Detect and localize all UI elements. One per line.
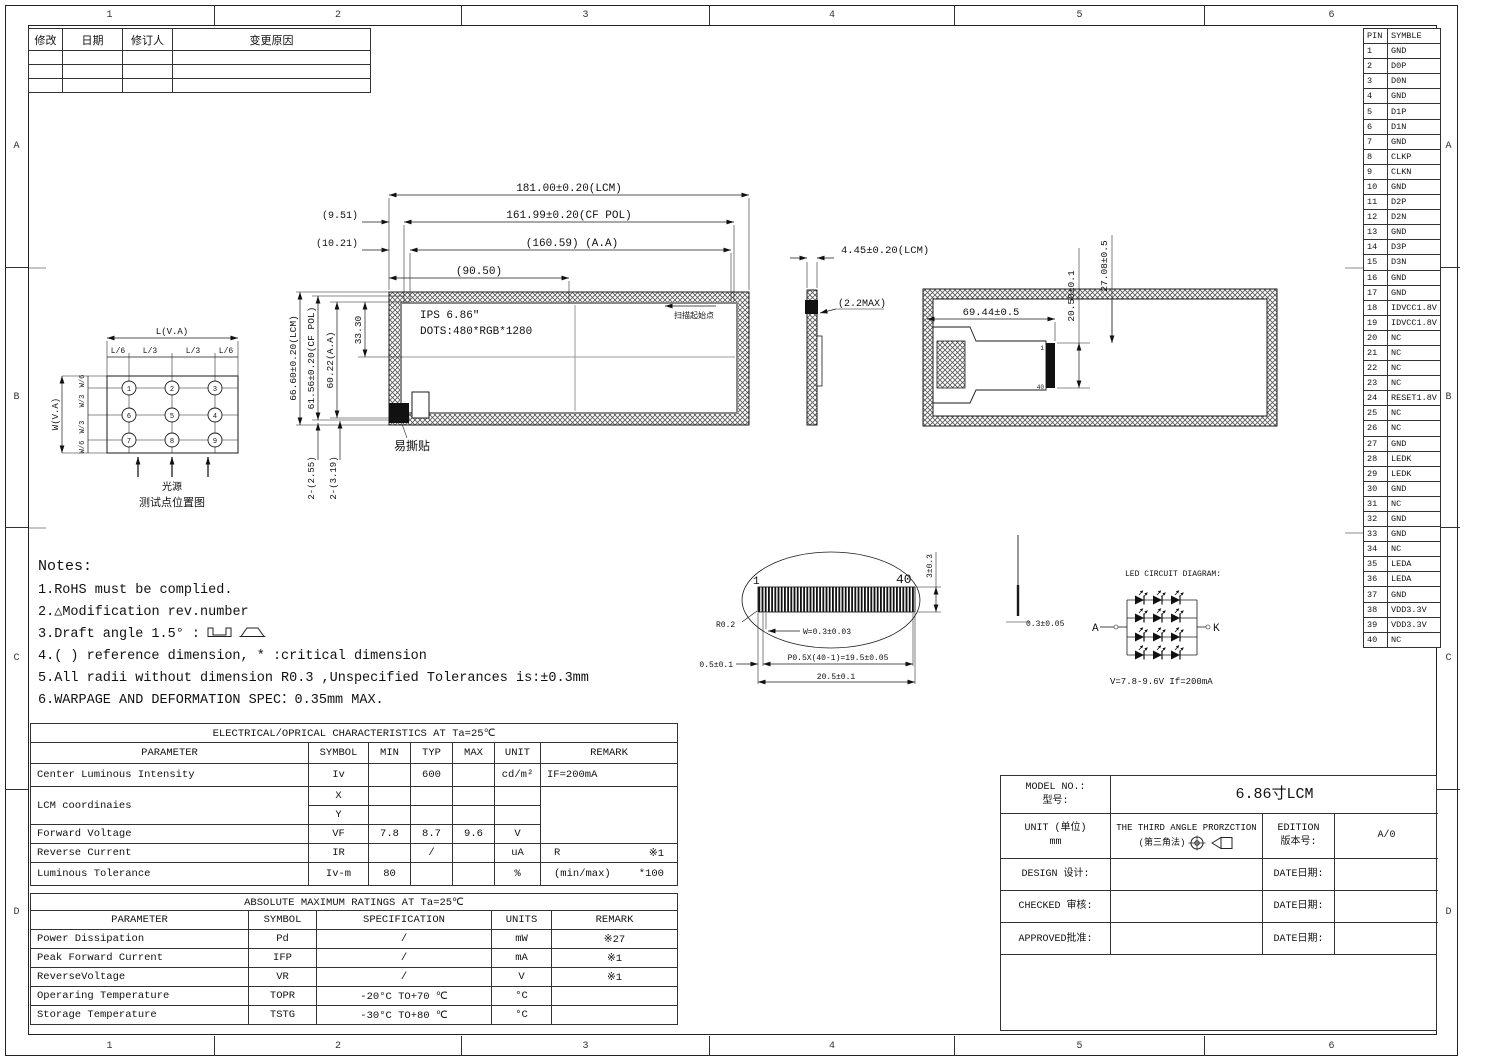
cell: ※27 — [552, 930, 678, 949]
cell: VR — [249, 968, 317, 987]
note-line-1: 1.RoHS must be complied. — [38, 580, 678, 602]
pin-symbol: CLKP — [1388, 149, 1441, 164]
cell: Y — [309, 806, 369, 825]
dim-lcm-width: 181.00±0.20(LCM) — [516, 183, 622, 195]
dim-fpc-radius: R0.2 — [716, 621, 735, 630]
test-point-number: 3 — [213, 386, 217, 394]
cell: / — [317, 930, 492, 949]
absolute-maximum-ratings-table: ABSOLUTE MAXIMUM RATINGS AT Ta=25℃ PARAM… — [30, 893, 678, 1025]
pin-number: 23 — [1364, 376, 1388, 391]
led-circuit-diagram: LED CIRCUIT DIAGRAM: A K V=7.8-9.6V If=2… — [1092, 570, 1221, 687]
pin-row: 21 NC — [1364, 345, 1441, 360]
test-diagram-caption: 测试点位置图 — [139, 495, 205, 510]
pin-number: 31 — [1364, 496, 1388, 511]
dim-thickness: 4.45±0.20(LCM) — [841, 245, 929, 257]
pin-row: 16 GND — [1364, 270, 1441, 285]
pin-symbol: D3N — [1388, 255, 1441, 270]
pin-row: 29 LEDK — [1364, 466, 1441, 481]
cell: 8.7 — [411, 825, 453, 844]
pin-row: 27 GND — [1364, 436, 1441, 451]
note-line-4: 4.( ) reference dimension, * :critical d… — [38, 646, 678, 668]
fpc-thickness-detail: 0.3±0.05 — [1006, 535, 1065, 629]
pin-symbol: LEDA — [1388, 557, 1441, 572]
table-row: Center Luminous Intensity Iv 600 cd/m² I… — [31, 764, 678, 787]
table-row: Reverse Current IR / uA R※1 — [31, 844, 678, 863]
cell: V — [495, 825, 541, 844]
cell: ※1 — [552, 968, 678, 987]
checked-label: CHECKED 审核: — [1001, 891, 1111, 923]
pin-row: 35 LEDA — [1364, 557, 1441, 572]
edition-label-cn: 版本号: — [1280, 836, 1316, 850]
pin-symbol: D3P — [1388, 240, 1441, 255]
table-row: Luminous Tolerance Iv-m 80 % (min/max)*1… — [31, 863, 678, 886]
pin-symbol: D0N — [1388, 74, 1441, 89]
pin-number: 12 — [1364, 210, 1388, 225]
cell: IF=200mA — [541, 764, 678, 787]
test-point-number: 8 — [170, 438, 174, 446]
note-text: 2.△Modification rev.number — [38, 605, 249, 620]
led-anode-label: A — [1092, 623, 1099, 635]
column-header: PARAMETER — [31, 911, 249, 930]
pin-symbol: GND — [1388, 89, 1441, 104]
empty-cell — [411, 863, 453, 886]
date-label: DATE日期: — [1263, 923, 1335, 956]
pin-number: 20 — [1364, 330, 1388, 345]
pin-symbol: GND — [1388, 527, 1441, 542]
cell: / — [411, 844, 453, 863]
pin-row: 11 D2P — [1364, 195, 1441, 210]
cell: -30°C TO+80 ℃ — [317, 1006, 492, 1025]
tear-sticker-label: 易撕贴 — [394, 439, 430, 454]
cell: cd/m² — [495, 764, 541, 787]
pin-symbol: RESET1.8V — [1388, 391, 1441, 406]
dim-aa-width: (160.59) (A.A) — [526, 238, 618, 250]
pin-row: 40 NC — [1364, 632, 1441, 647]
pin-symbol: GND — [1388, 134, 1441, 149]
pin-number: 25 — [1364, 406, 1388, 421]
ratings-table-title: ABSOLUTE MAXIMUM RATINGS AT Ta=25℃ — [31, 894, 678, 911]
pin-row: 33 GND — [1364, 527, 1441, 542]
remark-right: ※1 — [649, 847, 664, 860]
cell: IR — [309, 844, 369, 863]
table-row: Power Dissipation Pd / mW ※27 — [31, 930, 678, 949]
dim-l-seg: L/6 — [219, 347, 234, 356]
test-points: 1 2 3 6 5 4 7 8 9 — [122, 381, 222, 447]
edition-value: A/0 — [1335, 814, 1438, 859]
design-label: DESIGN 设计: — [1001, 859, 1111, 891]
cell: R※1 — [541, 844, 678, 863]
pin-number: 16 — [1364, 270, 1388, 285]
pin-row: 39 VDD3.3V — [1364, 617, 1441, 632]
pin-number: 30 — [1364, 481, 1388, 496]
pin-symbol: GND — [1388, 270, 1441, 285]
pin-number: 18 — [1364, 300, 1388, 315]
checked-value-cell — [1111, 891, 1263, 923]
dim-fpc-pin-width: W=0.3±0.03 — [803, 628, 851, 637]
connector-pin1-label: 1 — [1040, 345, 1044, 352]
projection-cell: THE THIRD ANGLE PRORZCTION (第三角法) — [1111, 814, 1263, 859]
dim-w-seg: W/6 — [79, 441, 87, 454]
pin-symbol: D1N — [1388, 119, 1441, 134]
test-point-number: 2 — [170, 386, 174, 394]
test-point-diagram: 1 2 3 6 5 4 7 8 9 L(V.A) L/6 L/3 L/3 L/6 — [51, 327, 238, 510]
pin-number: 27 — [1364, 436, 1388, 451]
pin-row: 9 CLKN — [1364, 164, 1441, 179]
note-text: 5.All radii without dimension R0.3 ,Unsp… — [38, 671, 589, 686]
pin-number: 1 — [1364, 44, 1388, 59]
test-point-number: 9 — [213, 438, 217, 446]
cell: X — [309, 787, 369, 806]
unit-value: mm — [1049, 836, 1061, 850]
pin-row: 4 GND — [1364, 89, 1441, 104]
pin-symbol: GND — [1388, 512, 1441, 527]
pin-row: 6 D1N — [1364, 119, 1441, 134]
pin-number: 14 — [1364, 240, 1388, 255]
fpc-pins — [758, 587, 915, 612]
cell: ReverseVoltage — [31, 968, 249, 987]
date-label: DATE日期: — [1263, 891, 1335, 923]
pin-row: 1 GND — [1364, 44, 1441, 59]
dim-aa-height: 60.22(A.A) — [325, 331, 336, 388]
cell: Peak Forward Current — [31, 949, 249, 968]
empty-cell — [453, 863, 495, 886]
date-value-cell — [1335, 891, 1438, 923]
dim-cfpol-height: 61.56±0.20(CF POL) — [306, 307, 317, 410]
pin-number: 10 — [1364, 179, 1388, 194]
pin-symbol: IDVCC1.8V — [1388, 300, 1441, 315]
dim-conn-offset: 27.08±0.5 — [1099, 240, 1110, 292]
pin-symbol: LEDK — [1388, 466, 1441, 481]
pin-symbol: VDD3.3V — [1388, 602, 1441, 617]
pin-row: 19 IDVCC1.8V — [1364, 315, 1441, 330]
pin-number: 8 — [1364, 149, 1388, 164]
empty-cell — [411, 787, 453, 806]
cell — [552, 987, 678, 1006]
dim-l-seg: L/3 — [186, 347, 201, 356]
fpc-pin1-label: 1 — [753, 576, 760, 588]
pin-row: 13 GND — [1364, 225, 1441, 240]
model-label: MODEL NO.: — [1025, 781, 1085, 795]
dim-cfpol-width: 161.99±0.20(CF POL) — [506, 210, 631, 222]
pin-number: 5 — [1364, 104, 1388, 119]
cell: Iv-m — [309, 863, 369, 886]
pin-symbol: NC — [1388, 542, 1441, 557]
empty-cell — [495, 787, 541, 806]
test-point-number: 4 — [213, 413, 217, 421]
fpc-detail: 1 40 3±0.3 R0.2 W=0.3±0.03 0.5±0.1 P0.5X… — [699, 552, 941, 684]
table-row: Storage Temperature TSTG -30°C TO+80 ℃ °… — [31, 1006, 678, 1025]
empty-cell — [369, 806, 411, 825]
fpc-pin40-label: 40 — [896, 572, 912, 587]
led-circuit-title: LED CIRCUIT DIAGRAM: — [1125, 570, 1221, 579]
projection-label-cn: (第三角法) — [1139, 836, 1186, 850]
pin-number: 21 — [1364, 345, 1388, 360]
pin-symbol: GND — [1388, 285, 1441, 300]
empty-cell — [453, 806, 495, 825]
dim-hole1: 2-(2.55) — [307, 456, 317, 499]
cell: LCM coordinaies — [31, 787, 309, 825]
pin-number: 35 — [1364, 557, 1388, 572]
pin-symbol: D0P — [1388, 59, 1441, 74]
panel-spec-line2: DOTS:480*RGB*1280 — [420, 326, 532, 338]
electrical-characteristics-table: ELECTRICAL/OPRICAL CHARACTERISTICS AT Ta… — [30, 723, 678, 886]
column-header: PIN — [1364, 29, 1388, 44]
column-header: SYMBLE — [1388, 29, 1441, 44]
column-header: UNIT — [495, 743, 541, 764]
pin-number: 11 — [1364, 195, 1388, 210]
column-header: MIN — [369, 743, 411, 764]
pin-number: 34 — [1364, 542, 1388, 557]
pin-number: 28 — [1364, 451, 1388, 466]
fpc-connector — [1046, 343, 1055, 388]
pin-number: 9 — [1364, 164, 1388, 179]
cell: Iv — [309, 764, 369, 787]
note-text: 1.RoHS must be complied. — [38, 583, 232, 598]
title-block: MODEL NO.: 型号: 6.86寸LCM UNIT (单位) mm THE… — [1000, 775, 1437, 955]
test-point-number: 7 — [127, 438, 131, 446]
dim-l-seg: L/3 — [143, 347, 158, 356]
cell: mW — [492, 930, 552, 949]
pin-row: 2 D0P — [1364, 59, 1441, 74]
cell: Luminous Tolerance — [31, 863, 309, 886]
dim-hole2: 2-(3.19) — [329, 456, 339, 499]
led-cathode-label: K — [1213, 623, 1220, 635]
dim-fpc-pin-height: 3±0.3 — [926, 554, 935, 578]
pin-number: 32 — [1364, 512, 1388, 527]
column-header: PARAMETER — [31, 743, 309, 764]
test-point-number: 5 — [170, 413, 174, 421]
empty-cell — [369, 844, 411, 863]
cell: °C — [492, 1006, 552, 1025]
pin-number: 39 — [1364, 617, 1388, 632]
dim-lcm-height: 66.60±0.20(LCM) — [288, 315, 299, 401]
edition-cell: EDITION 版本号: — [1263, 814, 1335, 859]
pin-row: 32 GND — [1364, 512, 1441, 527]
note-line-5: 5.All radii without dimension R0.3 ,Unsp… — [38, 668, 678, 690]
pin-symbol: NC — [1388, 376, 1441, 391]
test-point-number: 1 — [127, 386, 131, 394]
empty-cell — [453, 844, 495, 863]
dim-fpc-edge: 0.5±0.1 — [699, 661, 733, 670]
pin-number: 2 — [1364, 59, 1388, 74]
scan-start-label: 扫描起始点 — [674, 310, 714, 321]
pin-number: 29 — [1364, 466, 1388, 481]
remark-right: *100 — [639, 868, 664, 880]
pin-row: 38 VDD3.3V — [1364, 602, 1441, 617]
dim-offset2: (10.21) — [316, 238, 358, 250]
note-line-6: 6.WARPAGE AND DEFORMATION SPEC：0.35mm MA… — [38, 690, 678, 712]
pin-row: 3 D0N — [1364, 74, 1441, 89]
pin-symbol: GND — [1388, 436, 1441, 451]
cell: TSTG — [249, 1006, 317, 1025]
note-line-3: 3.Draft angle 1.5° : — [38, 624, 678, 646]
pin-symbol: NC — [1388, 345, 1441, 360]
model-label-cell: MODEL NO.: 型号: — [1001, 776, 1111, 814]
cell: % — [495, 863, 541, 886]
elec-table-title: ELECTRICAL/OPRICAL CHARACTERISTICS AT Ta… — [31, 724, 678, 743]
pin-row: 25 NC — [1364, 406, 1441, 421]
front-view: IPS 6.86″ DOTS:480*RGB*1280 扫描起始点 易撕贴 — [389, 292, 749, 454]
pin-row: 7 GND — [1364, 134, 1441, 149]
column-header: REMARK — [552, 911, 678, 930]
cell: ※1 — [552, 949, 678, 968]
date-label: DATE日期: — [1263, 859, 1335, 891]
pin-row: 12 D2N — [1364, 210, 1441, 225]
dim-w-seg: W/6 — [79, 375, 87, 388]
pin-row: 18 IDVCC1.8V — [1364, 300, 1441, 315]
pin-symbol: NC — [1388, 496, 1441, 511]
cell: 600 — [411, 764, 453, 787]
dim-l-total: L(V.A) — [156, 327, 188, 337]
pin-symbol: NC — [1388, 632, 1441, 647]
pin-row: 31 NC — [1364, 496, 1441, 511]
cell: Pd — [249, 930, 317, 949]
column-header: SYMBOL — [249, 911, 317, 930]
title-block-spare-area — [1000, 955, 1437, 1031]
cell: Reverse Current — [31, 844, 309, 863]
dim-half-width: (90.50) — [456, 266, 502, 278]
cell: IFP — [249, 949, 317, 968]
cell — [552, 1006, 678, 1025]
pin-number: 24 — [1364, 391, 1388, 406]
empty-cell — [453, 787, 495, 806]
cell: uA — [495, 844, 541, 863]
pin-assignment-table: PIN SYMBLE 1 GND 2 D0P 3 D0N 4 GND 5 D1P… — [1363, 28, 1441, 648]
pin-symbol: GND — [1388, 44, 1441, 59]
pin-row: 36 LEDA — [1364, 572, 1441, 587]
pin-symbol: D2P — [1388, 195, 1441, 210]
led-spec: V=7.8-9.6V If=200mA — [1110, 677, 1213, 687]
pin-row: 20 NC — [1364, 330, 1441, 345]
dim-fpc-total: 20.5±0.1 — [817, 673, 856, 682]
edition-label: EDITION — [1277, 822, 1319, 836]
front-view-h-dimensions: 181.00±0.20(LCM) 161.99±0.20(CF POL) (9.… — [316, 183, 749, 303]
drawing-sheet: 1 2 3 4 5 6 1 2 3 4 5 6 A B C D A B C D … — [0, 0, 1500, 1060]
pin-row: 10 GND — [1364, 179, 1441, 194]
unit-cell: UNIT (单位) mm — [1001, 814, 1111, 859]
fpc-stiffener — [937, 341, 965, 388]
unit-label: UNIT (单位) — [1024, 822, 1086, 836]
table-row: ReverseVoltage VR / V ※1 — [31, 968, 678, 987]
notes-title: Notes: — [38, 556, 678, 578]
dim-fpc-pitch: P0.5X(40-1)=19.5±0.05 — [788, 654, 889, 663]
dim-conn-span: 20.50±0.1 — [1066, 270, 1077, 322]
pin-symbol: NC — [1388, 406, 1441, 421]
model-label-cn: 型号: — [1042, 795, 1068, 809]
pin-number: 17 — [1364, 285, 1388, 300]
cell: VF — [309, 825, 369, 844]
cell: Forward Voltage — [31, 825, 309, 844]
dim-fpc-width: 69.44±0.5 — [963, 307, 1020, 319]
pin-symbol: GND — [1388, 481, 1441, 496]
test-point-number: 6 — [127, 413, 131, 421]
note-text: 6.WARPAGE AND DEFORMATION SPEC：0.35mm MA… — [38, 693, 384, 708]
pin-row: 30 GND — [1364, 481, 1441, 496]
note-text: 4.( ) reference dimension, * :critical d… — [38, 649, 427, 664]
pin-symbol: D2N — [1388, 210, 1441, 225]
cell: (min/max)*100 — [541, 863, 678, 886]
dim-offset1: (9.51) — [322, 210, 358, 222]
panel-spec-line1: IPS 6.86″ — [420, 310, 479, 322]
pin-row: 5 D1P — [1364, 104, 1441, 119]
pin-row: 24 RESET1.8V — [1364, 391, 1441, 406]
pin-number: 37 — [1364, 587, 1388, 602]
date-value-cell — [1335, 859, 1438, 891]
pin-row: 28 LEDK — [1364, 451, 1441, 466]
pin-row: 22 NC — [1364, 361, 1441, 376]
cell: Storage Temperature — [31, 1006, 249, 1025]
column-header: REMARK — [541, 743, 678, 764]
pin-number: 6 — [1364, 119, 1388, 134]
pin-symbol: GND — [1388, 179, 1441, 194]
cell: Operaring Temperature — [31, 987, 249, 1006]
design-value-cell — [1111, 859, 1263, 891]
empty-cell — [495, 806, 541, 825]
remark-left: (min/max) — [554, 868, 611, 880]
pin-symbol: NC — [1388, 361, 1441, 376]
pin-row: 14 D3P — [1364, 240, 1441, 255]
draft-angle-icon — [239, 624, 266, 639]
dim-w-total: W(V.A) — [51, 398, 61, 430]
model-value: 6.86寸LCM — [1111, 776, 1438, 814]
projection-label: THE THIRD ANGLE PRORZCTION — [1116, 821, 1256, 835]
dim-l-seg: L/6 — [111, 347, 126, 356]
pin-row: 17 GND — [1364, 285, 1441, 300]
cell: / — [317, 949, 492, 968]
pin-number: 19 — [1364, 315, 1388, 330]
pin-number: 13 — [1364, 225, 1388, 240]
pin-number: 40 — [1364, 632, 1388, 647]
pin-row: 34 NC — [1364, 542, 1441, 557]
pin-number: 15 — [1364, 255, 1388, 270]
cell: °C — [492, 987, 552, 1006]
note-text: 3.Draft angle 1.5° : — [38, 627, 200, 642]
cell: 7.8 — [369, 825, 411, 844]
pin-number: 36 — [1364, 572, 1388, 587]
empty-cell — [369, 787, 411, 806]
column-header: UNITS — [492, 911, 552, 930]
cell: 9.6 — [453, 825, 495, 844]
draft-angle-icon — [206, 624, 233, 639]
side-view: 4.45±0.20(LCM) (2.2MAX) — [790, 245, 929, 425]
cell: mA — [492, 949, 552, 968]
cell: V — [492, 968, 552, 987]
date-value-cell — [1335, 923, 1438, 956]
pin-symbol: D1P — [1388, 104, 1441, 119]
dim-center-height: 33.30 — [353, 315, 364, 344]
pin-row: 15 D3N — [1364, 255, 1441, 270]
pin-row: 37 GND — [1364, 587, 1441, 602]
note-line-2: 2.△Modification rev.number — [38, 602, 678, 624]
pin-symbol: LEDA — [1388, 572, 1441, 587]
column-header: TYP — [411, 743, 453, 764]
dim-w-seg: W/3 — [79, 421, 87, 434]
dim-fpc-thickness: (2.2MAX) — [838, 298, 886, 310]
pin-number: 26 — [1364, 421, 1388, 436]
pin-row: 26 NC — [1364, 421, 1441, 436]
pin-symbol: GND — [1388, 587, 1441, 602]
pin-number: 4 — [1364, 89, 1388, 104]
remark-left: R — [554, 847, 560, 860]
empty-cell — [369, 764, 411, 787]
table-row: LCM coordinaies X — [31, 787, 678, 806]
pin-symbol: NC — [1388, 421, 1441, 436]
pin-row: 23 NC — [1364, 376, 1441, 391]
column-header: SPECIFICATION — [317, 911, 492, 930]
cell: / — [317, 968, 492, 987]
pin-symbol: VDD3.3V — [1388, 617, 1441, 632]
empty-cell — [453, 764, 495, 787]
